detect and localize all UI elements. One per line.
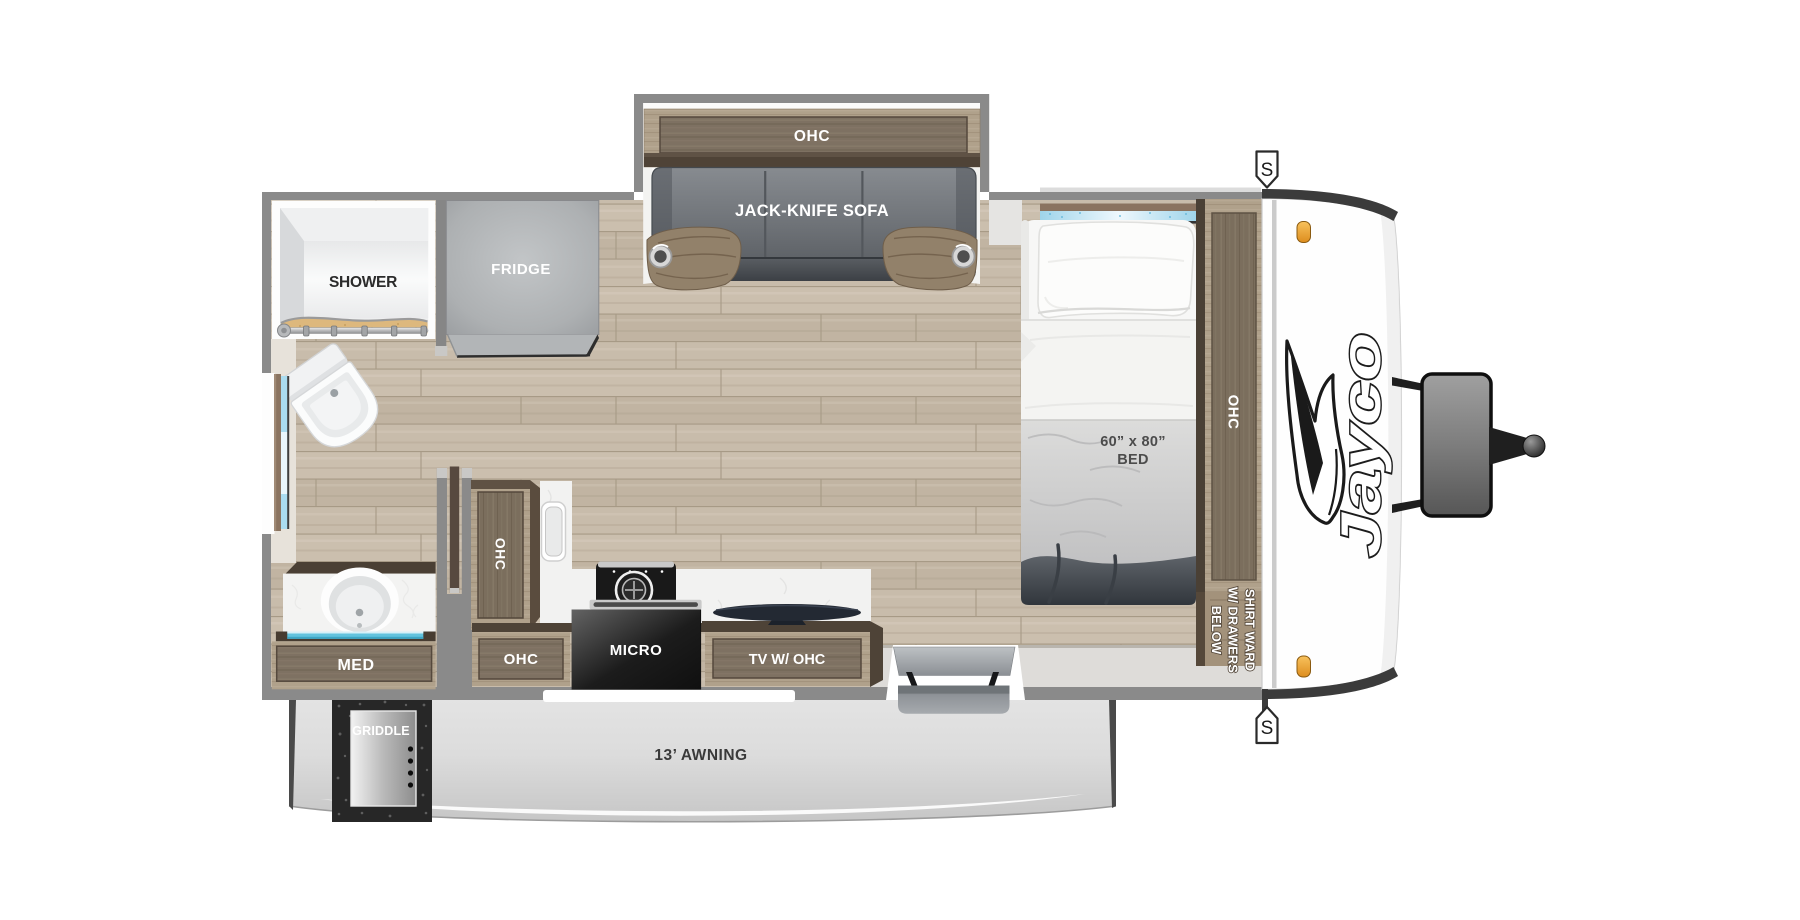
svg-text:JACK-KNIFE SOFA: JACK-KNIFE SOFA — [735, 202, 889, 220]
svg-text:MICRO: MICRO — [610, 642, 663, 659]
svg-text:S: S — [1261, 718, 1274, 739]
svg-text:BED: BED — [1117, 452, 1149, 468]
svg-text:OHC: OHC — [493, 538, 509, 571]
svg-text:OHC: OHC — [504, 651, 539, 668]
svg-text:SHOWER: SHOWER — [329, 274, 397, 291]
svg-text:BELOW: BELOW — [1209, 606, 1224, 655]
svg-text:13’ AWNING: 13’ AWNING — [654, 747, 747, 764]
svg-text:FRIDGE: FRIDGE — [491, 261, 551, 278]
svg-text:MED: MED — [337, 657, 374, 674]
svg-text:60” x 80”: 60” x 80” — [1100, 434, 1166, 450]
svg-text:SHIRT WARD: SHIRT WARD — [1243, 589, 1258, 671]
svg-text:OHC: OHC — [1225, 395, 1242, 430]
svg-text:OHC: OHC — [794, 128, 830, 145]
svg-text:GRIDDLE: GRIDDLE — [352, 724, 410, 738]
svg-text:S: S — [1261, 160, 1274, 181]
svg-text:W/ DRAWERS: W/ DRAWERS — [1226, 587, 1241, 673]
svg-text:TV W/ OHC: TV W/ OHC — [749, 652, 826, 668]
